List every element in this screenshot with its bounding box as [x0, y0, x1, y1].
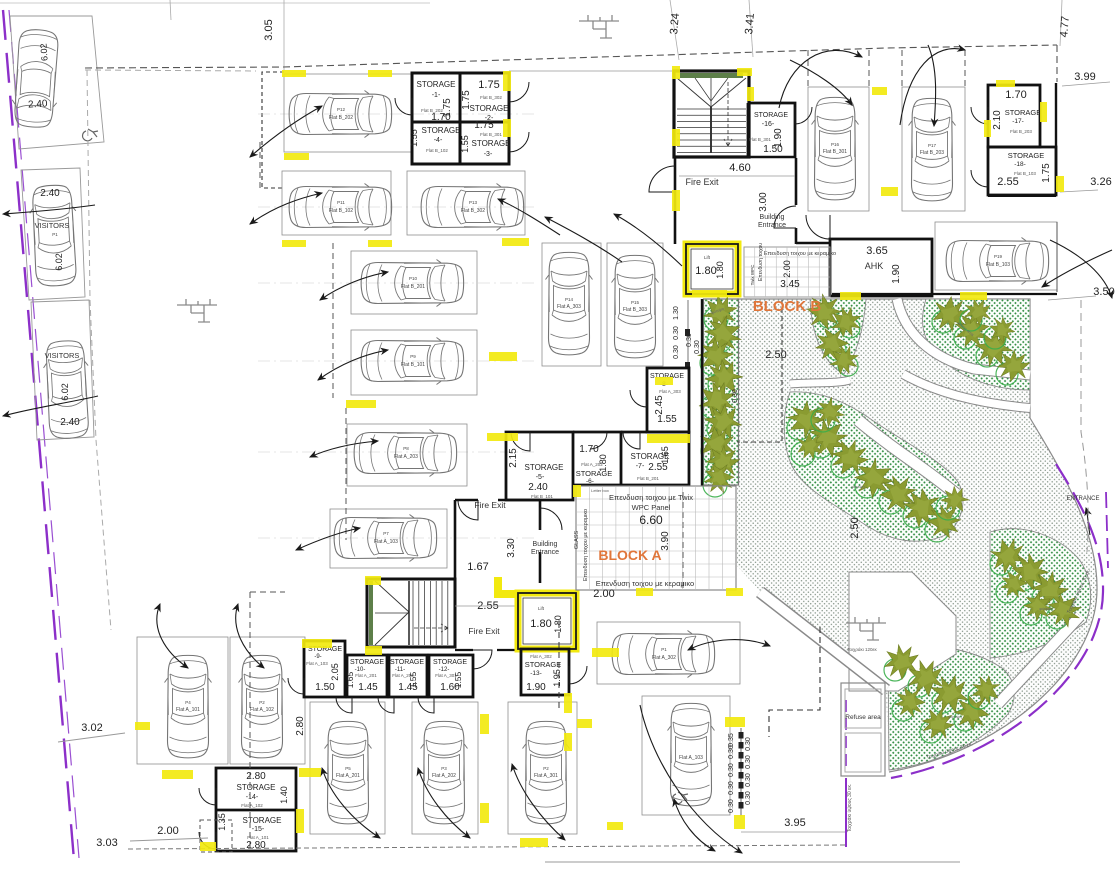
svg-text:1.70: 1.70 — [579, 444, 599, 455]
svg-text:P1: P1 — [661, 647, 667, 652]
svg-text:1.30: 1.30 — [673, 306, 680, 320]
svg-text:1.35: 1.35 — [217, 813, 227, 831]
svg-text:Flat A_303: Flat A_303 — [659, 389, 681, 394]
svg-text:2.15: 2.15 — [508, 448, 519, 468]
svg-text:VISITORS: VISITORS — [45, 351, 80, 360]
svg-text:0.30: 0.30 — [732, 389, 739, 403]
svg-text:-16-: -16- — [762, 121, 775, 128]
svg-text:Flat A_301: Flat A_301 — [534, 773, 558, 779]
svg-text:STORAGE: STORAGE — [470, 104, 509, 113]
svg-text:0.30: 0.30 — [728, 799, 735, 813]
svg-text:P1: P1 — [52, 232, 58, 237]
svg-text:P2: P2 — [543, 766, 549, 771]
svg-text:1.65: 1.65 — [660, 446, 670, 464]
svg-text:P19: P19 — [994, 254, 1003, 259]
svg-text:1.45: 1.45 — [398, 682, 418, 693]
svg-text:φύτεψη: φύτεψη — [851, 484, 864, 489]
svg-text:-6-: -6- — [586, 478, 594, 485]
svg-text:P4: P4 — [185, 700, 191, 705]
svg-text:1.90: 1.90 — [891, 264, 902, 284]
svg-text:-5-: -5- — [536, 474, 545, 481]
svg-text:2.80: 2.80 — [295, 716, 306, 736]
svg-text:1.90: 1.90 — [526, 682, 546, 693]
svg-text:P10: P10 — [409, 276, 418, 281]
svg-text:STORAGE: STORAGE — [525, 463, 564, 472]
svg-text:Flat B_101: Flat B_101 — [401, 362, 425, 368]
svg-text:STORAGE: STORAGE — [350, 659, 384, 666]
svg-text:Flat B_201: Flat B_201 — [637, 476, 659, 481]
svg-text:2.45: 2.45 — [654, 395, 665, 415]
svg-text:STORAGE: STORAGE — [472, 139, 511, 148]
svg-text:-4-: -4- — [434, 137, 443, 144]
svg-text:2.50: 2.50 — [849, 517, 861, 538]
svg-text:Flat B_102: Flat B_102 — [329, 208, 353, 214]
svg-text:Flat A_101: Flat A_101 — [176, 707, 200, 713]
svg-text:-7-: -7- — [636, 463, 645, 470]
svg-text:3.41: 3.41 — [743, 13, 757, 35]
svg-text:0.30: 0.30 — [745, 773, 752, 787]
svg-text:2.40: 2.40 — [40, 188, 60, 199]
svg-text:3.95: 3.95 — [784, 817, 805, 829]
svg-text:Flat B_301: Flat B_301 — [480, 132, 502, 137]
svg-text:Flat A_302: Flat A_302 — [530, 654, 552, 659]
svg-text:6.02: 6.02 — [38, 43, 49, 61]
svg-text:3.99: 3.99 — [1074, 71, 1095, 83]
svg-text:2.10: 2.10 — [992, 110, 1003, 130]
svg-text:P7: P7 — [383, 531, 389, 536]
svg-text:0.30: 0.30 — [745, 755, 752, 769]
svg-text:Flat A_201: Flat A_201 — [336, 773, 360, 779]
svg-text:-3-: -3- — [484, 151, 493, 158]
svg-text:3.90: 3.90 — [660, 531, 671, 551]
svg-text:0.30: 0.30 — [694, 340, 701, 354]
svg-text:Flat B_302: Flat B_302 — [480, 95, 502, 100]
svg-text:Flat B_301: Flat B_301 — [823, 149, 847, 155]
svg-text:Επενδυση τοιχου με κεραμικο: Επενδυση τοιχου με κεραμικο — [596, 579, 694, 588]
svg-text:Flat A_103: Flat A_103 — [306, 661, 328, 666]
svg-text:Fire Exit: Fire Exit — [474, 500, 506, 510]
svg-text:-9-: -9- — [314, 654, 321, 660]
svg-text:P8: P8 — [403, 446, 409, 451]
svg-text:Flat B_201: Flat B_201 — [401, 284, 425, 290]
svg-text:0.30: 0.30 — [673, 326, 680, 340]
svg-text:P5: P5 — [345, 766, 351, 771]
svg-text:Twix WPC: Twix WPC — [750, 264, 755, 285]
svg-text:6.02: 6.02 — [54, 253, 64, 271]
svg-text:0.30: 0.30 — [673, 345, 680, 359]
svg-text:1.55: 1.55 — [409, 129, 419, 147]
svg-text:0.30: 0.30 — [745, 791, 752, 805]
svg-text:STORAGE: STORAGE — [754, 112, 788, 119]
svg-text:1.65: 1.65 — [345, 671, 355, 688]
svg-text:STORAGE: STORAGE — [433, 659, 467, 666]
svg-text:Τοιχράκι 120εκ: Τοιχράκι 120εκ — [847, 646, 877, 652]
svg-text:Refuse area: Refuse area — [845, 714, 881, 721]
svg-text:1.70: 1.70 — [1005, 89, 1026, 101]
svg-text:Flat B_203: Flat B_203 — [1010, 129, 1032, 134]
svg-text:2.80: 2.80 — [246, 840, 266, 851]
svg-text:STORAGE: STORAGE — [417, 80, 456, 89]
svg-text:3.03: 3.03 — [96, 837, 117, 849]
svg-text:BLOCK B: BLOCK B — [753, 298, 821, 315]
svg-text:AHK: AHK — [865, 261, 884, 271]
svg-text:3.30: 3.30 — [506, 538, 517, 558]
svg-text:Flat A_201: Flat A_201 — [355, 673, 377, 678]
svg-text:Flat A_202: Flat A_202 — [432, 773, 456, 779]
svg-text:STORAGE: STORAGE — [237, 783, 276, 792]
svg-text:2.55: 2.55 — [997, 176, 1018, 188]
svg-text:2.40: 2.40 — [528, 482, 548, 493]
svg-text:P2: P2 — [259, 700, 265, 705]
svg-text:2.40: 2.40 — [60, 417, 80, 428]
svg-text:GLASS: GLASS — [574, 530, 580, 549]
svg-text:Lift: Lift — [704, 255, 711, 260]
svg-text:Fire Exit: Fire Exit — [685, 177, 719, 187]
svg-text:STORAGE: STORAGE — [422, 126, 461, 135]
svg-text:3.24: 3.24 — [668, 13, 682, 35]
svg-text:STORAGE: STORAGE — [243, 816, 282, 825]
svg-text:-15-: -15- — [252, 826, 265, 833]
svg-text:2.50: 2.50 — [765, 349, 786, 361]
svg-text:1.75: 1.75 — [1041, 163, 1052, 183]
svg-text:P11: P11 — [337, 200, 345, 205]
svg-text:Επενδυση τοιχου: Επενδυση τοιχου — [758, 243, 764, 281]
svg-text:Entrance: Entrance — [531, 549, 559, 556]
svg-text:0.30: 0.30 — [728, 781, 735, 795]
svg-text:1.75: 1.75 — [474, 120, 494, 131]
svg-text:WPC Panel: WPC Panel — [632, 503, 671, 512]
svg-text:φύτεψη: φύτεψη — [948, 714, 961, 719]
svg-text:1.55: 1.55 — [460, 135, 470, 153]
svg-text:Flat B_303: Flat B_303 — [623, 307, 647, 313]
svg-text:2.05: 2.05 — [330, 663, 340, 681]
svg-text:2.00: 2.00 — [593, 588, 614, 600]
svg-text:Entrance: Entrance — [758, 222, 786, 229]
svg-text:Flat A_203: Flat A_203 — [394, 454, 418, 460]
svg-text:P16: P16 — [831, 142, 840, 147]
svg-text:P12: P12 — [337, 107, 346, 112]
svg-text:3.65: 3.65 — [866, 245, 887, 257]
svg-text:Lift: Lift — [538, 606, 545, 611]
svg-text:Flat A_102: Flat A_102 — [241, 803, 263, 808]
svg-text:Flat B_102: Flat B_102 — [426, 148, 448, 153]
svg-text:2.00: 2.00 — [157, 825, 178, 837]
svg-text:Flat A_103: Flat A_103 — [374, 539, 398, 545]
svg-text:1.67: 1.67 — [467, 561, 488, 573]
svg-text:1.40: 1.40 — [279, 786, 289, 804]
svg-text:P17: P17 — [928, 143, 937, 148]
svg-text:STORAGE: STORAGE — [1005, 108, 1042, 117]
svg-text:0.30: 0.30 — [728, 763, 735, 777]
svg-text:0.30: 0.30 — [728, 745, 735, 759]
svg-text:STORAGE: STORAGE — [390, 659, 424, 666]
svg-text:Επενδυση τοιχου με κεραμικο: Επενδυση τοιχου με κεραμικο — [764, 251, 836, 257]
svg-text:4.60: 4.60 — [729, 162, 750, 174]
svg-text:3.05: 3.05 — [263, 19, 275, 40]
svg-text:Building: Building — [760, 214, 785, 221]
svg-text:Flat B_301: Flat B_301 — [749, 137, 771, 142]
svg-text:-13-: -13- — [530, 670, 542, 677]
svg-text:STORAGE: STORAGE — [576, 469, 613, 478]
svg-text:VISITORS: VISITORS — [35, 221, 70, 230]
svg-text:P9: P9 — [410, 354, 416, 359]
svg-text:1.95: 1.95 — [552, 669, 562, 687]
svg-text:BLOCK A: BLOCK A — [598, 547, 661, 563]
svg-text:Flat A_103: Flat A_103 — [679, 755, 703, 761]
svg-text:-18-: -18- — [1014, 161, 1026, 168]
svg-text:-14-: -14- — [246, 794, 259, 801]
svg-text:φύτεψη: φύτεψη — [1039, 606, 1052, 611]
svg-text:2.80: 2.80 — [246, 771, 266, 782]
svg-text:Flat A_302: Flat A_302 — [652, 655, 676, 661]
svg-text:P15: P15 — [631, 300, 640, 305]
svg-text:STORAGE: STORAGE — [525, 660, 562, 669]
svg-text:1.55: 1.55 — [657, 414, 677, 425]
svg-text:3.45: 3.45 — [780, 279, 800, 290]
svg-text:1.80: 1.80 — [553, 615, 563, 633]
svg-text:0.35: 0.35 — [728, 733, 735, 747]
svg-text:2.40: 2.40 — [28, 98, 49, 110]
svg-text:2.00: 2.00 — [782, 260, 792, 278]
svg-text:1.45: 1.45 — [358, 682, 378, 693]
svg-text:1.60: 1.60 — [440, 682, 460, 693]
svg-text:1.80: 1.80 — [695, 265, 716, 277]
svg-text:ENTRANCE: ENTRANCE — [1066, 496, 1099, 502]
svg-text:3.00: 3.00 — [758, 192, 769, 212]
svg-text:Επενδυση τοιχου με κεραμικο: Επενδυση τοιχου με κεραμικο — [583, 509, 589, 581]
svg-text:6.60: 6.60 — [639, 513, 663, 527]
svg-text:1.80: 1.80 — [715, 261, 725, 279]
svg-text:Flat B_203: Flat B_203 — [920, 150, 944, 156]
svg-text:Flat B_302: Flat B_302 — [461, 208, 485, 214]
svg-text:-1-: -1- — [432, 92, 441, 99]
svg-text:Επενδυση τοιχου με Twix: Επενδυση τοιχου με Twix — [609, 493, 693, 502]
svg-text:4.77: 4.77 — [1058, 16, 1072, 38]
svg-text:Flat B_101: Flat B_101 — [531, 494, 553, 499]
svg-text:P13: P13 — [469, 200, 478, 205]
svg-text:0.30: 0.30 — [745, 737, 752, 751]
svg-text:Flat A_303: Flat A_303 — [557, 304, 581, 310]
svg-text:Letter box: Letter box — [591, 488, 609, 493]
svg-text:Flat A_202: Flat A_202 — [581, 462, 603, 467]
svg-text:Flat B_202: Flat B_202 — [329, 115, 353, 121]
svg-text:1.70: 1.70 — [431, 112, 451, 123]
svg-text:3.26: 3.26 — [1090, 176, 1111, 188]
svg-text:P3: P3 — [441, 766, 447, 771]
svg-text:STORAGE: STORAGE — [1008, 151, 1045, 160]
svg-text:1.50: 1.50 — [315, 682, 335, 693]
svg-text:Building: Building — [533, 541, 558, 548]
svg-text:Fire Exit: Fire Exit — [468, 626, 500, 636]
svg-text:Flat A_102: Flat A_102 — [250, 707, 274, 713]
svg-text:1.75: 1.75 — [478, 79, 499, 91]
svg-text:Τοιχράκι ύψους 30 εκ.: Τοιχράκι ύψους 30 εκ. — [846, 784, 853, 832]
svg-text:Flat B_103: Flat B_103 — [986, 262, 1010, 268]
svg-text:-17-: -17- — [1012, 118, 1024, 125]
svg-text:3.02: 3.02 — [81, 722, 102, 734]
svg-text:1.80: 1.80 — [530, 618, 551, 630]
svg-text:6.02: 6.02 — [60, 383, 70, 401]
svg-text:P14: P14 — [565, 297, 574, 302]
svg-text:1.50: 1.50 — [763, 144, 783, 155]
